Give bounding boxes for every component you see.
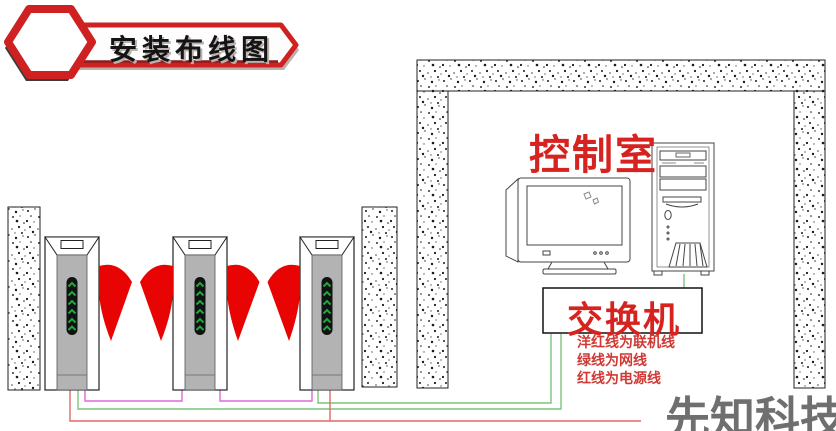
legend-line-red: 红线为电源线 <box>577 370 675 388</box>
cable-red-power-line <box>70 389 641 421</box>
cable-legend: 洋红线为联机线 绿线为网线 红线为电源线 <box>577 334 675 388</box>
pc-tower-icon <box>652 143 714 275</box>
legend-line-magenta: 洋红线为联机线 <box>577 334 675 352</box>
control-room-left-wall-icon <box>417 91 448 388</box>
hexagon-badge-icon <box>8 9 92 75</box>
page-title: 安装布线图 <box>109 28 274 68</box>
turnstile-gate-1-icon <box>45 237 99 390</box>
control-room-label: 控制室 <box>529 121 658 181</box>
crt-monitor-icon <box>506 178 630 274</box>
control-room-right-wall-icon <box>794 91 825 388</box>
legend-line-green: 绿线为网线 <box>577 352 675 370</box>
wall-column-left-icon <box>8 207 40 390</box>
control-room-top-wall-icon <box>417 60 825 91</box>
watermark-logo: 先知科技 <box>665 382 836 431</box>
installation-wiring-diagram: 安装布线图 控制室 交换机 洋红线为联机线 绿线为网线 红线为电源线 先知科技 <box>0 0 836 431</box>
turnstile-gate-3-icon <box>300 237 354 390</box>
turnstile-gate-2-icon <box>173 237 227 390</box>
wall-column-middle-icon <box>362 207 397 387</box>
cable-magenta-link-line <box>85 389 312 401</box>
